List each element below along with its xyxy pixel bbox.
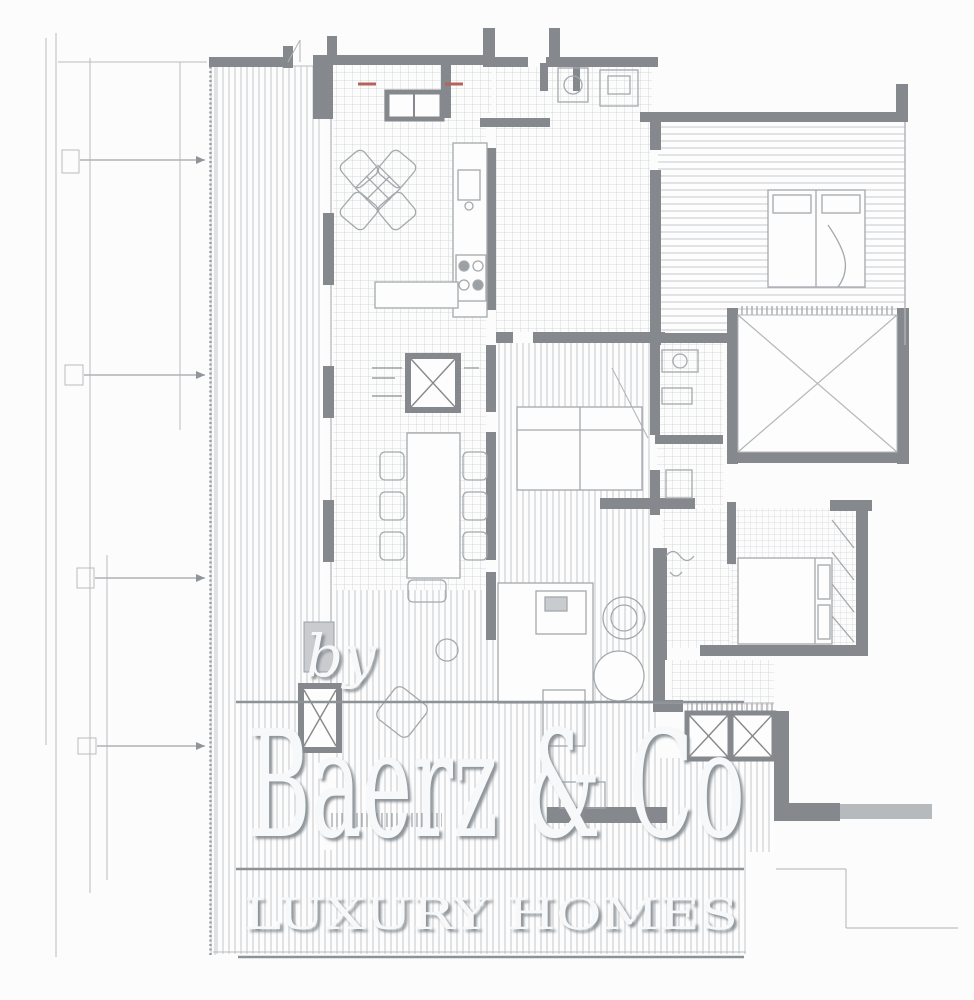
facade-bracket: [62, 150, 79, 173]
wall: [650, 170, 661, 345]
burner: [459, 261, 469, 271]
watermark-brand: Baerz & Co: [248, 699, 745, 871]
wall: [323, 213, 334, 285]
wall: [486, 345, 496, 412]
wall: [313, 55, 333, 119]
wall: [333, 55, 493, 65]
arrowhead: [196, 156, 205, 164]
wall: [700, 645, 868, 656]
wall: [640, 112, 908, 122]
wall: [663, 333, 727, 343]
burner: [473, 280, 483, 290]
laundry-appliances: [387, 92, 442, 119]
wall: [540, 63, 548, 91]
wall: [650, 122, 661, 150]
wall: [896, 84, 908, 114]
wall: [600, 498, 695, 509]
dining-table: [407, 433, 460, 578]
wall: [323, 500, 334, 562]
facade-bracket: [65, 365, 83, 385]
floor-plan-page: by Baerz & Co LUXURY HOMES: [0, 0, 974, 1000]
wall: [480, 118, 550, 127]
hallway-floor: [496, 122, 650, 332]
arrowhead: [196, 742, 205, 750]
kitchen-island: [375, 282, 458, 308]
bathroom-corridor-floor: [663, 508, 730, 648]
daybed-sofa: [517, 407, 642, 490]
wall: [493, 57, 528, 67]
facade-bracket: [77, 568, 94, 588]
bed2: [738, 558, 832, 644]
wall-light-segment: [840, 804, 932, 819]
lightwell-void: [738, 315, 897, 452]
leader-arrows: [196, 156, 205, 750]
fireplace-box: [408, 356, 458, 410]
wall: [327, 36, 337, 56]
wall: [486, 572, 496, 640]
void-top-hatch: [738, 306, 896, 315]
wall: [856, 505, 868, 656]
arrowhead: [196, 371, 205, 379]
wall: [283, 46, 293, 68]
wall: [655, 435, 723, 444]
wall: [727, 452, 909, 463]
wall: [546, 57, 658, 67]
bed1: [768, 190, 865, 287]
wall: [653, 548, 667, 660]
dimension-leaders: [80, 160, 205, 746]
wall: [496, 332, 513, 343]
wall: [209, 57, 285, 67]
floor-plan-drawing: by Baerz & Co LUXURY HOMES: [0, 0, 974, 1000]
wall: [533, 332, 665, 343]
wall: [727, 308, 738, 464]
wall: [323, 366, 334, 418]
watermark-byline: by: [306, 622, 377, 690]
watermark-tagline: LUXURY HOMES: [244, 890, 738, 940]
facade-bracket: [78, 738, 96, 754]
arrowhead: [196, 574, 205, 582]
closet-rooms-floor: [657, 343, 723, 505]
round-table: [594, 651, 644, 701]
facade-section-lines: [46, 33, 207, 957]
wall: [897, 308, 909, 464]
tray: [545, 597, 567, 611]
wall: [774, 803, 840, 821]
wall: [650, 343, 660, 435]
wall: [727, 502, 736, 564]
